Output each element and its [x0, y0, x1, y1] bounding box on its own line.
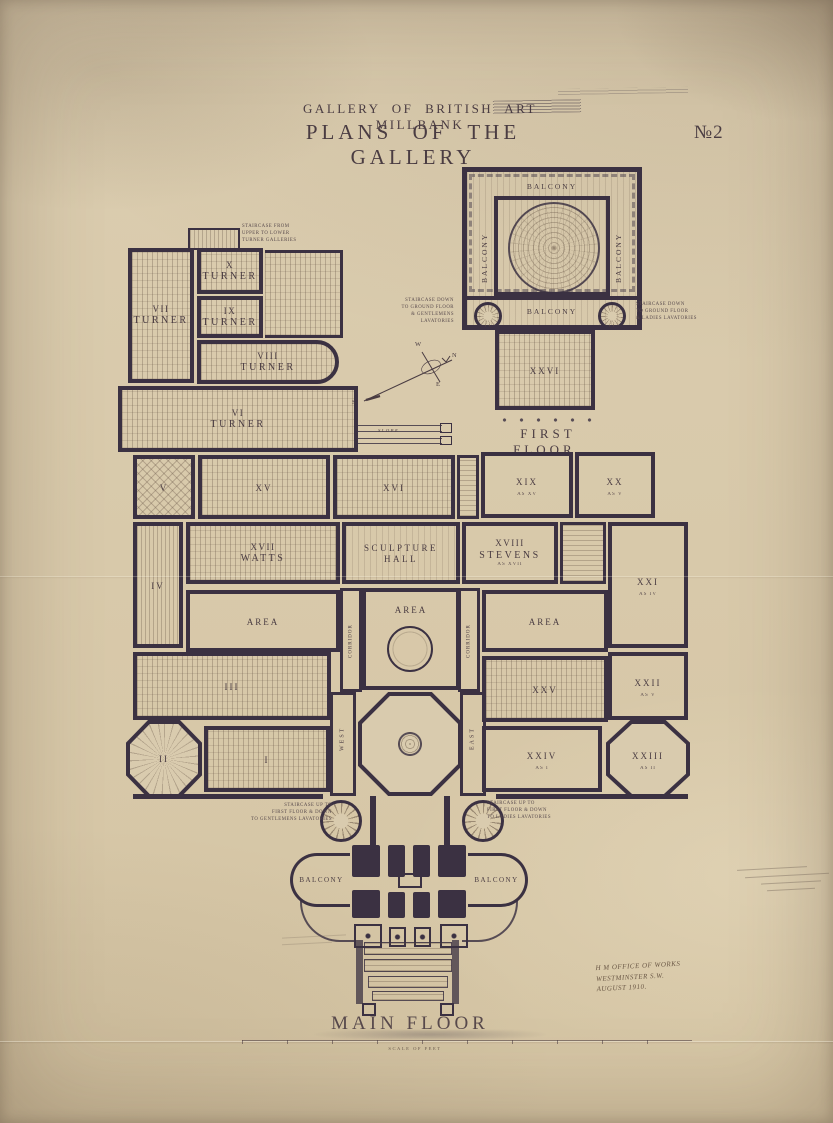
room-vi-turner: VITURNER	[118, 386, 358, 452]
balcony-left-label: BALCONY	[299, 876, 343, 884]
south-wall-west	[133, 794, 323, 799]
ff-note-right: STAIRCASE DOWN TO GROUND FLOOR & LADIES …	[636, 302, 712, 323]
curved-wall-right	[462, 900, 518, 942]
column-dots	[496, 416, 596, 424]
stair-note-right: STAIRCASE UP TO FIRST FLOOR & DOWN TO LA…	[487, 801, 573, 822]
plan-sheet: GALLERY OF BRITISH ART MILLBANK PLANS OF…	[0, 0, 833, 1123]
room-xxiv: XXIVAS I	[482, 726, 602, 792]
stair-note-left: STAIRCASE UP TO FIRST FLOOR & DOWN TO GE…	[234, 803, 332, 824]
portico-pier	[413, 892, 430, 918]
room-iii: III	[133, 652, 331, 720]
room-xvii-watts: XVIIWATTS	[186, 522, 340, 584]
scale-bar	[242, 1040, 692, 1044]
room-xx: XXAS V	[575, 452, 655, 518]
ff-note-left: STAIRCASE DOWN TO GROUND FLOOR & GENTLEM…	[388, 298, 454, 326]
ink-smudge	[300, 1030, 560, 1039]
rotunda-centre	[398, 732, 422, 756]
dome-icon	[508, 202, 600, 294]
crease-line	[0, 576, 833, 577]
entrance-step	[364, 942, 452, 955]
vestibule-wall	[444, 796, 450, 848]
room-v: V	[133, 455, 195, 519]
compass-e: E	[436, 381, 440, 388]
sculpture-hall: SCULPTURE HALL	[342, 522, 460, 584]
room-xvi: XVI	[333, 455, 455, 519]
portico-pier	[388, 892, 405, 918]
room-xix: XIXAS XV	[481, 452, 573, 518]
room-ix-turner: IXTURNER	[197, 296, 263, 338]
office-stamp: H M OFFICE OF WORKS WESTMINSTER S.W. AUG…	[595, 957, 716, 995]
plans-title: PLANS OF THE GALLERY	[248, 120, 578, 170]
portico-pier	[352, 890, 380, 918]
area-west: AREA	[186, 590, 340, 652]
sheet-number: №2	[694, 122, 724, 144]
vestibule-wall	[370, 796, 376, 848]
step-rail-left	[356, 940, 363, 1004]
entrance-door	[398, 873, 422, 888]
stair-circle-icon	[598, 302, 626, 330]
west-label: WEST	[336, 704, 349, 774]
slope-end-box	[440, 436, 452, 445]
room-viii-turner: VIIITURNER	[197, 340, 339, 384]
south-wall-east	[496, 794, 688, 799]
room-xxv: XXV	[482, 656, 608, 722]
entrance-step	[364, 959, 452, 972]
turner-stair-note: STAIRCASE FROM UPPER TO LOWER TURNER GAL…	[242, 224, 342, 245]
millbank-strike	[493, 99, 581, 114]
balcony-right-label: BALCONY	[474, 876, 518, 884]
pencil-note	[282, 930, 352, 948]
smudge-mark	[558, 87, 688, 95]
balcony-right-label: BALCONY	[613, 222, 624, 294]
corridor-west-label: CORRIDOR	[345, 598, 357, 684]
balcony-wing-right: BALCONY	[468, 853, 528, 907]
pencil-note	[737, 862, 829, 910]
room-vii-turner: VIITURNER	[128, 248, 194, 383]
balcony-top-label: BALCONY	[497, 182, 607, 191]
compass-s: S	[352, 399, 356, 406]
room-x-turner: XTURNER	[197, 248, 263, 294]
entrance-step	[368, 976, 448, 988]
portico-pier	[438, 845, 466, 877]
stair-strip	[457, 455, 479, 519]
room-i: I	[204, 726, 330, 792]
stair-strip	[560, 522, 606, 584]
scale-label: SCALE OF FEET	[370, 1046, 460, 1051]
east-label: EAST	[466, 704, 479, 774]
room-xv: XV	[198, 455, 330, 519]
compass-n: N	[452, 352, 457, 359]
area-circle	[387, 626, 433, 672]
balcony-strip-wall	[462, 296, 642, 300]
balcony-wing-left: BALCONY	[290, 853, 350, 907]
entrance-step	[372, 991, 444, 1001]
step-rail-right	[452, 940, 459, 1004]
stair-circle-icon	[474, 302, 502, 330]
compass-w: W	[415, 341, 421, 348]
balcony-bottom-label: BALCONY	[497, 307, 607, 316]
slope-end-box	[440, 423, 452, 433]
room-ii-label: II	[159, 754, 169, 764]
slope-rail	[356, 438, 442, 444]
portico-pier	[352, 845, 380, 877]
turner-stair-box	[188, 228, 240, 250]
room-xxii: XXIIAS V	[608, 652, 688, 720]
balcony-left-label: BALCONY	[479, 222, 490, 294]
turner-landing	[265, 250, 343, 338]
corridor-east-label: CORRIDOR	[463, 598, 475, 684]
room-xxvi: XXVI	[495, 330, 595, 410]
room-iv: IV	[133, 522, 183, 648]
slope-label: SLOPE	[378, 428, 399, 433]
room-xxi: XXIAS IV	[608, 522, 688, 648]
area-east: AREA	[482, 590, 608, 652]
room-xxiii-label: XXIII	[632, 751, 664, 761]
room-xviii-stevens: XVIIISTEVENSAS XVII	[462, 522, 558, 584]
